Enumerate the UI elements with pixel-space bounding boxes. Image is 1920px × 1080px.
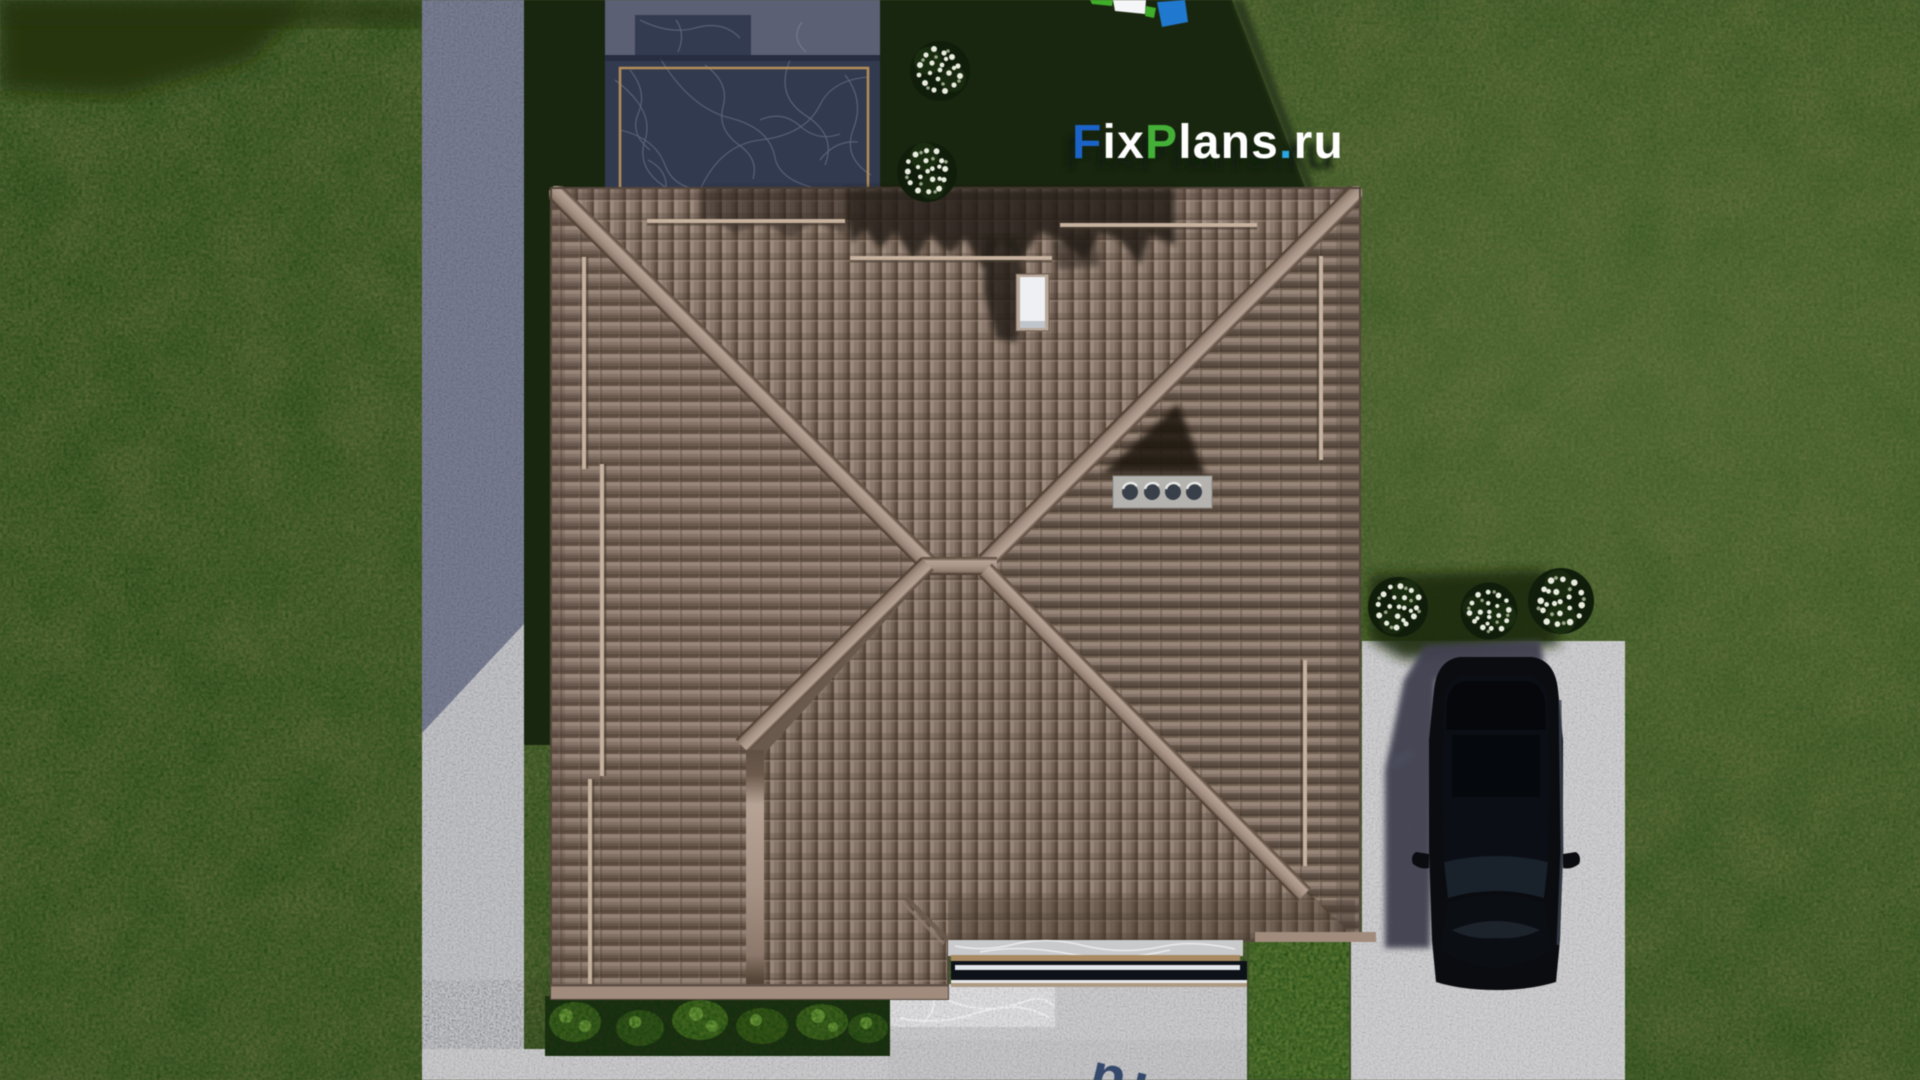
svg-text:FixPlans.ru: FixPlans.ru [1072, 116, 1344, 169]
